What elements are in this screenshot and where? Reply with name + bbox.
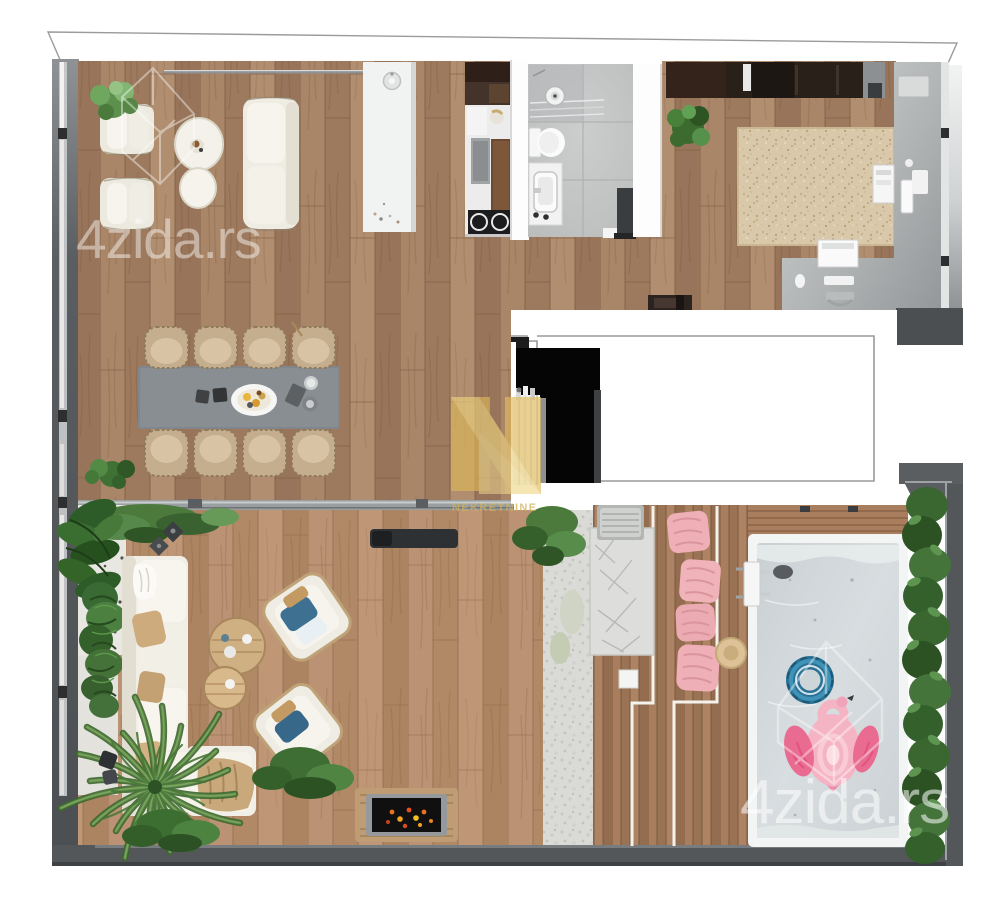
svg-text:4zida.rs: 4zida.rs [76, 208, 261, 270]
svg-text:4zida.rs: 4zida.rs [740, 768, 949, 837]
svg-text:NEKRETNINE: NEKRETNINE [452, 502, 538, 514]
